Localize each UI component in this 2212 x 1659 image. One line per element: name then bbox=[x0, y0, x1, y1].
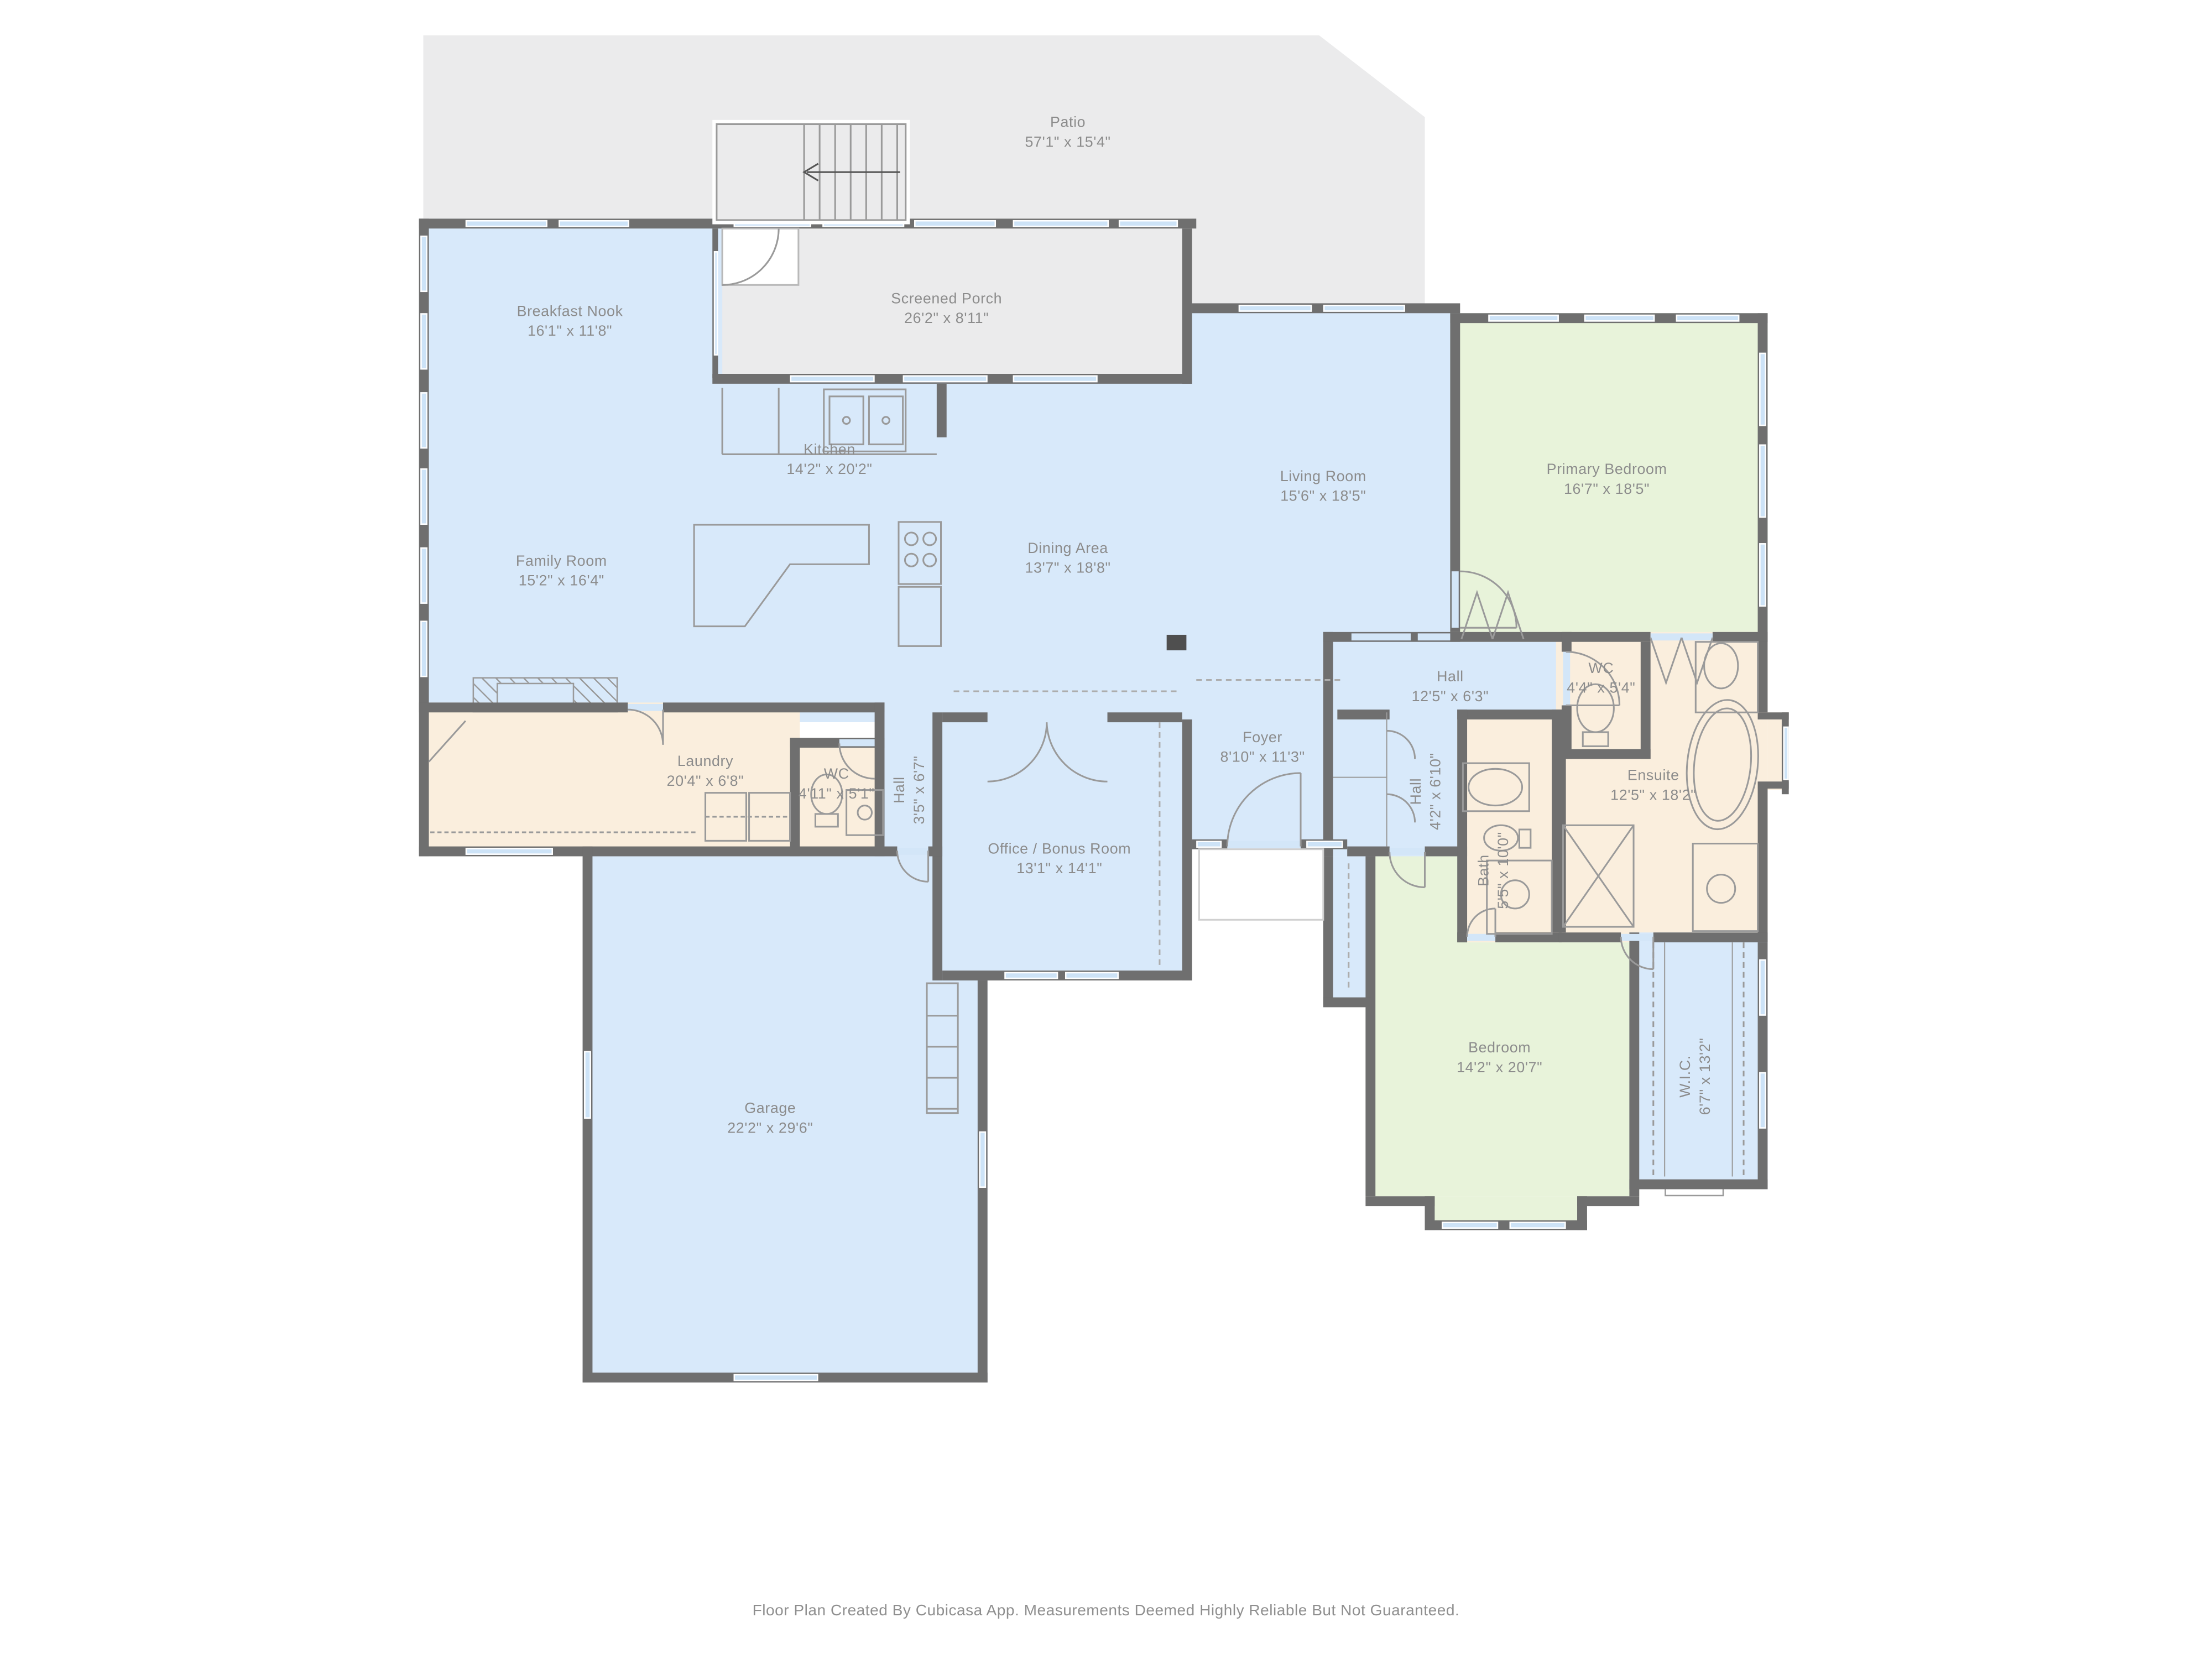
room-dims: 13'1" x 14'1" bbox=[988, 859, 1131, 879]
label-dining-area: Dining Area 13'7" x 18'8" bbox=[1025, 539, 1111, 578]
freestanding-tub-icon bbox=[1681, 696, 1764, 833]
structure-dashed-lines bbox=[953, 680, 1348, 988]
room-dims: 57'1" x 15'4" bbox=[1025, 133, 1111, 153]
ensuite-vanity bbox=[1693, 843, 1757, 931]
burner-icon bbox=[905, 533, 917, 545]
faucet-icon bbox=[843, 417, 850, 424]
room-dims: 5'5" x 10'0" bbox=[1494, 832, 1514, 909]
fridge bbox=[899, 587, 941, 646]
burner-icon bbox=[905, 554, 917, 566]
room-name: Kitchen bbox=[786, 440, 872, 460]
toilet-tank bbox=[1519, 830, 1530, 848]
fixtures-overlay bbox=[0, 0, 2212, 1659]
room-dims: 4'2" x 6'10" bbox=[1426, 753, 1446, 830]
toilet-tank bbox=[1583, 732, 1608, 747]
label-breakfast-nook: Breakfast Nook 16'1" x 11'8" bbox=[517, 302, 623, 341]
room-dims: 14'2" x 20'7" bbox=[1457, 1058, 1542, 1078]
label-screened-porch: Screened Porch 26'2" x 8'11" bbox=[891, 289, 1002, 328]
ensuite-counter bbox=[1695, 642, 1757, 713]
room-name: Foyer bbox=[1220, 728, 1305, 748]
room-name: Breakfast Nook bbox=[517, 302, 623, 322]
bathtub-icon bbox=[1469, 769, 1522, 805]
label-foyer: Foyer 8'10" x 11'3" bbox=[1220, 728, 1305, 767]
label-wc: WC 4'4" x 5'4" bbox=[1567, 659, 1635, 698]
label-kitchen: Kitchen 14'2" x 20'2" bbox=[786, 440, 872, 479]
room-dims: 16'1" x 11'8" bbox=[517, 322, 623, 342]
room-name: Screened Porch bbox=[891, 289, 1002, 309]
bathtub-alcove bbox=[1463, 763, 1529, 811]
front-door-arc bbox=[1227, 773, 1301, 847]
room-dims: 13'7" x 18'8" bbox=[1025, 559, 1111, 578]
room-dims: 4'4" x 5'4" bbox=[1567, 679, 1635, 698]
room-name: Hall bbox=[1406, 753, 1426, 830]
bath-door-arc bbox=[1467, 909, 1495, 937]
room-name: Hall bbox=[890, 755, 910, 824]
primary-closet-doors bbox=[1462, 592, 1524, 639]
room-name: Dining Area bbox=[1025, 539, 1111, 559]
room-dims: 8'10" x 11'3" bbox=[1220, 748, 1305, 768]
ensuite-corridor-doors bbox=[1651, 638, 1713, 683]
room-name: WC bbox=[1567, 659, 1635, 679]
room-dims: 15'6" x 18'5" bbox=[1280, 487, 1366, 507]
label-hall-bedrooms: Hall 4'2" x 6'10" bbox=[1406, 753, 1446, 830]
room-name: Bath bbox=[1474, 832, 1494, 909]
faucet-icon bbox=[883, 417, 890, 424]
label-bath: Bath 5'5" x 10'0" bbox=[1474, 832, 1514, 909]
label-garage: Garage 22'2" x 29'6" bbox=[727, 1099, 813, 1138]
sink-icon bbox=[1704, 643, 1738, 688]
garage-stair-treads bbox=[927, 1016, 958, 1109]
room-name: Patio bbox=[1025, 113, 1111, 133]
room-dims: 12'5" x 6'3" bbox=[1412, 687, 1489, 707]
laundry-corner-cabinet bbox=[429, 721, 466, 762]
porch-landing bbox=[722, 228, 799, 285]
label-wc-small: WC 4'11" x 5'1" bbox=[799, 765, 875, 804]
room-name: Living Room bbox=[1280, 467, 1366, 487]
garage-door-arc bbox=[897, 851, 928, 881]
room-name: WC bbox=[799, 765, 875, 785]
wic-door-arc bbox=[1621, 937, 1653, 969]
kitchen-sink-left bbox=[830, 397, 863, 445]
label-ensuite: Ensuite 12'5" x 18'2" bbox=[1610, 766, 1696, 805]
kitchen-sink-right bbox=[869, 397, 902, 445]
shower-x-icon bbox=[1563, 825, 1634, 927]
room-name: Laundry bbox=[667, 752, 744, 772]
label-hall-small: Hall 3'5" x 6'7" bbox=[890, 755, 930, 824]
room-name: Primary Bedroom bbox=[1547, 460, 1667, 480]
room-dims: 12'5" x 18'2" bbox=[1610, 786, 1696, 806]
room-name: Family Room bbox=[516, 551, 607, 571]
washer bbox=[706, 793, 747, 841]
room-dims: 14'2" x 20'2" bbox=[786, 460, 872, 480]
room-dims: 4'11" x 5'1" bbox=[799, 784, 875, 804]
label-office: Office / Bonus Room 13'1" x 14'1" bbox=[988, 839, 1131, 879]
label-bedroom: Bedroom 14'2" x 20'7" bbox=[1457, 1039, 1542, 1078]
footer-disclaimer: Floor Plan Created By Cubicasa App. Meas… bbox=[0, 1603, 2212, 1620]
room-name: Office / Bonus Room bbox=[988, 839, 1131, 859]
bedroom-door-arc bbox=[1390, 852, 1425, 888]
room-dims: 6'7" x 13'2" bbox=[1695, 1038, 1715, 1115]
sink-icon bbox=[858, 806, 872, 820]
label-living-room: Living Room 15'6" x 18'5" bbox=[1280, 467, 1366, 506]
garage-stairs bbox=[927, 983, 958, 1113]
stove bbox=[899, 522, 941, 584]
label-laundry: Laundry 20'4" x 6'8" bbox=[667, 752, 744, 791]
room-dims: 22'2" x 29'6" bbox=[727, 1119, 813, 1139]
room-dims: 3'5" x 6'7" bbox=[910, 755, 930, 824]
room-dims: 20'4" x 6'8" bbox=[667, 771, 744, 791]
burner-icon bbox=[924, 533, 936, 545]
room-name: Bedroom bbox=[1457, 1039, 1542, 1058]
room-name: W.I.C. bbox=[1676, 1038, 1696, 1115]
sink-icon bbox=[1707, 875, 1735, 903]
front-stoop bbox=[1199, 849, 1323, 920]
room-name: Garage bbox=[727, 1099, 813, 1119]
room-name: Ensuite bbox=[1610, 766, 1696, 786]
room-dims: 16'7" x 18'5" bbox=[1547, 479, 1667, 499]
label-wic: W.I.C. 6'7" x 13'2" bbox=[1676, 1038, 1715, 1115]
label-family-room: Family Room 15'2" x 16'4" bbox=[516, 551, 607, 591]
label-hall-main: Hall 12'5" x 6'3" bbox=[1412, 667, 1489, 707]
toilet-tank bbox=[815, 814, 838, 827]
kitchen-island bbox=[694, 525, 869, 627]
french-door-arcs bbox=[988, 722, 1108, 781]
label-patio: Patio 57'1" x 15'4" bbox=[1025, 113, 1111, 152]
floor-plan: Patio 57'1" x 15'4" Screened Porch 26'2"… bbox=[0, 0, 2212, 1659]
laundry-door-arc bbox=[628, 709, 663, 745]
room-name: Hall bbox=[1412, 667, 1489, 687]
burner-icon bbox=[924, 554, 936, 566]
label-primary-bedroom: Primary Bedroom 16'7" x 18'5" bbox=[1547, 460, 1667, 499]
room-dims: 26'2" x 8'11" bbox=[891, 309, 1002, 329]
room-dims: 15'2" x 16'4" bbox=[516, 571, 607, 591]
